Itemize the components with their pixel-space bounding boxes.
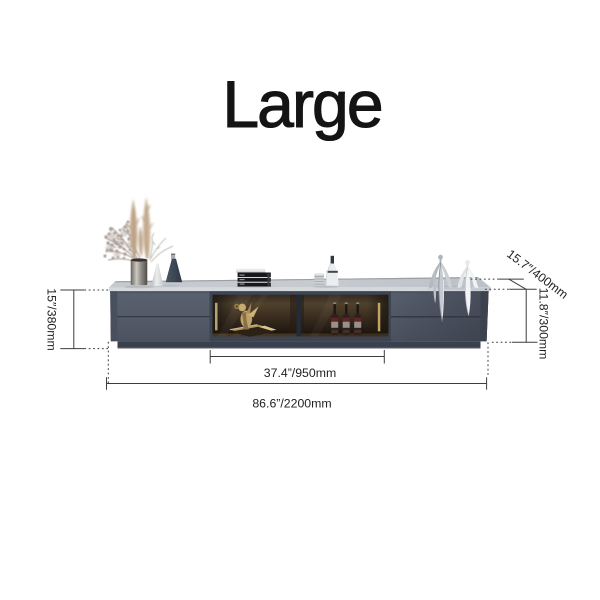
- svg-text:15″/380mm: 15″/380mm: [45, 288, 59, 350]
- svg-text:37.4”/950mm: 37.4”/950mm: [264, 366, 336, 380]
- svg-text:86.6”/2200mm: 86.6”/2200mm: [252, 396, 331, 410]
- svg-text:11.8″/300mm: 11.8″/300mm: [537, 288, 551, 360]
